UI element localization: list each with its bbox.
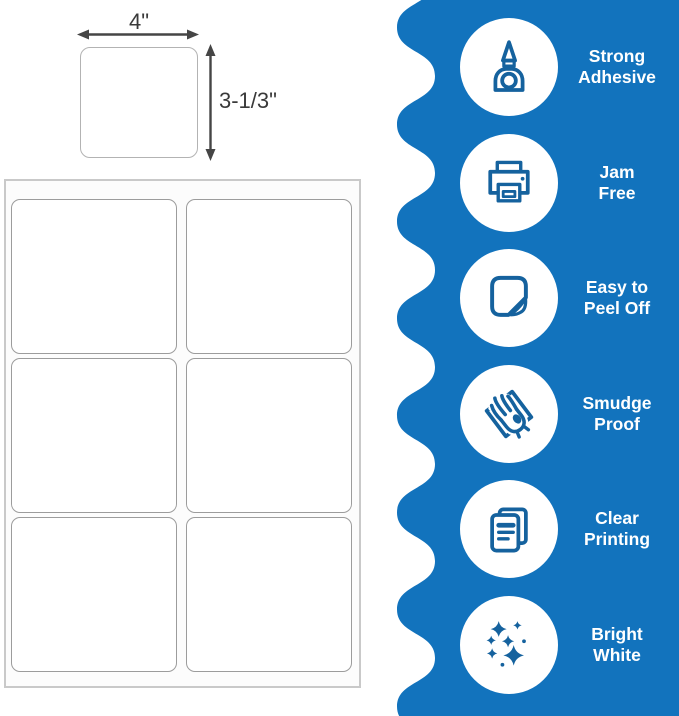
feature-label: Strong Adhesive: [556, 18, 678, 116]
feature-row-strong-adhesive: Strong Adhesive: [460, 18, 679, 116]
feature-icon-circle: [460, 480, 558, 578]
glue-bottle-icon: [479, 37, 539, 97]
feature-row-bright-white: Bright White: [460, 596, 679, 694]
feature-row-jam-free: Jam Free: [460, 134, 679, 232]
feature-icon-circle: [460, 18, 558, 116]
sparkles-icon: [479, 615, 539, 675]
feature-icon-circle: [460, 134, 558, 232]
printer-icon: [479, 153, 539, 213]
feature-row-smudge-proof: Smudge Proof: [460, 365, 679, 463]
feature-label: Bright White: [556, 596, 678, 694]
feature-label: Easy to Peel Off: [556, 249, 678, 347]
feature-row-easy-peel: Easy to Peel Off: [460, 249, 679, 347]
feature-label: Jam Free: [556, 134, 678, 232]
feature-icon-circle: [460, 365, 558, 463]
feature-label: Clear Printing: [556, 480, 678, 578]
product-infographic: 4" 3-1/3" Strong Adhesive: [0, 0, 679, 716]
feature-icon-circle: [460, 249, 558, 347]
hand-smudge-icon: [479, 384, 539, 444]
peel-sticker-icon: [479, 268, 539, 328]
feature-icon-circle: [460, 596, 558, 694]
feature-label: Smudge Proof: [556, 365, 678, 463]
feature-row-clear-printing: Clear Printing: [460, 480, 679, 578]
documents-icon: [479, 499, 539, 559]
